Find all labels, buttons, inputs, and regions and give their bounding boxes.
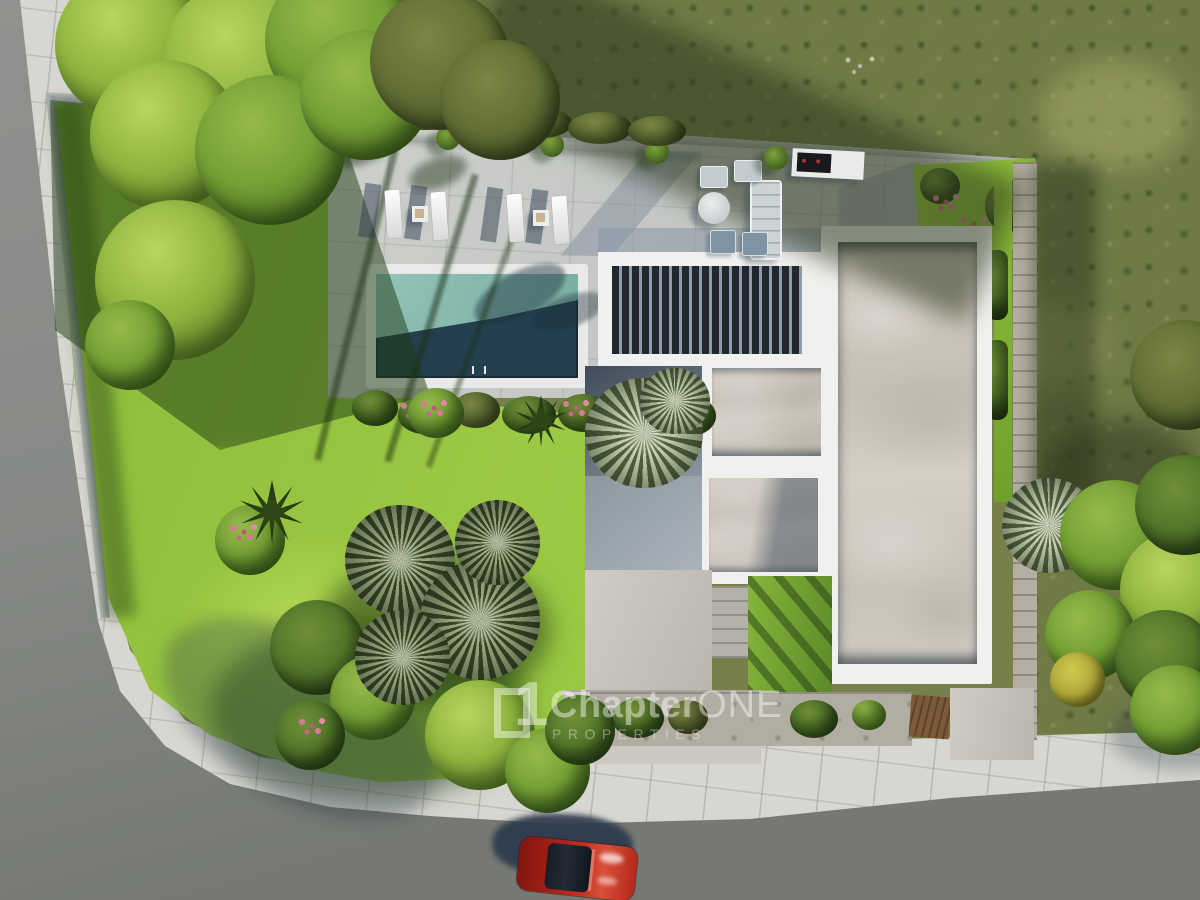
scrub-light-patch [1040,60,1190,170]
hedge [628,116,686,146]
pink-flowers [296,716,328,738]
pergola-slats [612,266,802,354]
armchair [734,160,762,182]
rear-grass-patch [748,576,832,696]
palm-tree [640,368,710,434]
armchair [742,232,768,256]
roof-concrete [712,368,830,456]
car-roof-glass [544,843,593,893]
brand-subtitle: PROPERTIES [552,726,707,742]
pergola [598,252,840,368]
side-table [412,206,428,222]
brand-chapter: Chapter [550,684,697,726]
tree-canopy [440,40,560,160]
bbq-grill [797,152,832,173]
roof-shade [709,478,818,572]
topiary-ball [764,146,788,170]
logo-numeral: 1 [514,674,548,736]
tree-canopy [85,300,175,390]
garden-gate [909,695,952,740]
coffee-table [698,192,730,224]
side-table [533,210,549,226]
garage-ramp [950,688,1034,760]
aerial-render: 1 ChapterONE PROPERTIES [0,0,1200,900]
bbq-counter [791,148,864,180]
armchair [700,166,728,188]
pink-flowers [418,398,450,420]
garden-steps [712,586,750,658]
palm-tree [455,500,540,585]
lower-terrace [585,570,712,692]
villa-roof-wing [700,356,830,468]
armchair [710,230,736,254]
villa-roof-lower [697,466,830,584]
bush-yellow [1050,652,1105,707]
palm-tree [355,610,450,705]
pink-flowers [228,522,260,544]
brand-name: ChapterONE [550,684,782,727]
watermark: 1 ChapterONE PROPERTIES [494,680,814,752]
white-flower-patch [840,52,884,82]
shrub [352,390,398,426]
brand-one: ONE [697,684,782,726]
mid-terrace [585,476,702,572]
shrub [852,700,886,730]
pool-ladder [472,366,486,374]
hedge [568,112,632,144]
